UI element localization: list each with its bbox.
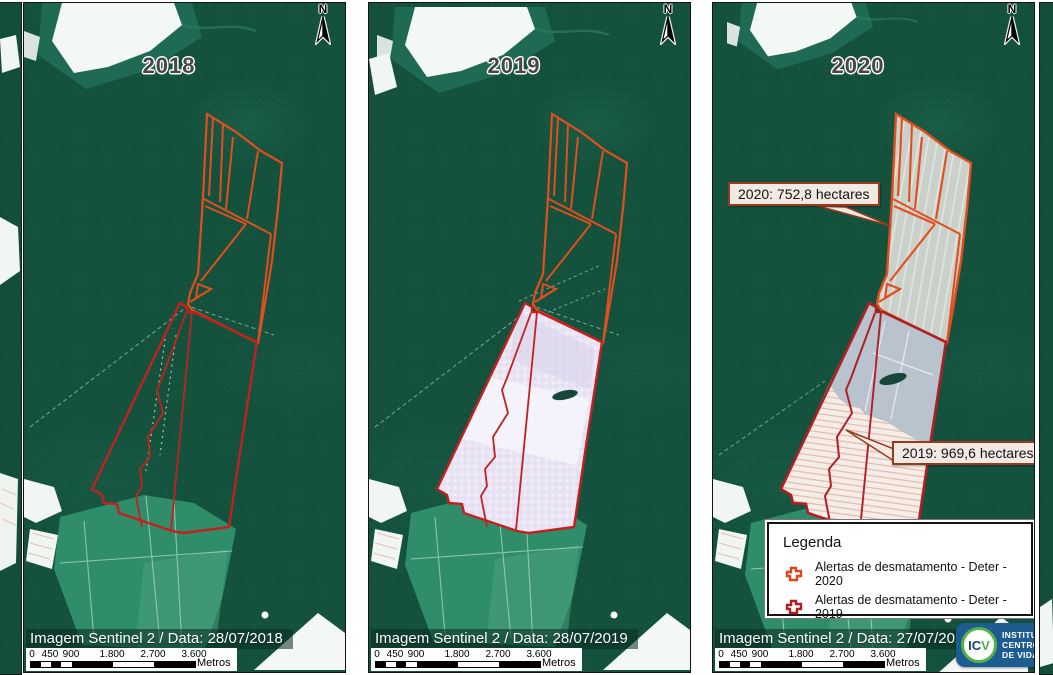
legend-item-label: Alertas de desmatamento - Deter - 2019 — [815, 593, 1019, 621]
legend-item-2019: Alertas de desmatamento - Deter - 2019 — [783, 593, 1019, 621]
icv-acronym: IC — [968, 638, 981, 653]
north-arrow: N — [657, 4, 679, 50]
north-label: N — [1001, 4, 1023, 15]
scale-tick: 450 — [387, 649, 404, 660]
north-label: N — [657, 4, 679, 15]
scale-tick: 900 — [63, 649, 80, 660]
cropped-map-strip-left — [0, 2, 22, 675]
scale-bar-segments — [719, 661, 885, 668]
north-arrow: N — [312, 4, 334, 50]
icv-logo: ICV INSTITUTO CENTRO DE VIDA — [956, 623, 1035, 667]
north-arrow-icon — [1004, 15, 1020, 45]
year-label: 2018 — [143, 53, 196, 79]
scale-unit: Metros — [197, 657, 231, 669]
scale-bar: 0 450 900 1.800 2.700 3.600 Metros — [715, 648, 926, 671]
map-panel-2019: 2019 N Imagem Sentinel 2 / Data: 28/07/2… — [368, 2, 691, 673]
callout-2019-hectares: 2019: 969,6 hectares — [892, 441, 1035, 465]
legend: Legenda Alertas de desmatamento - Deter … — [767, 522, 1033, 616]
strip-imagery — [1040, 3, 1053, 672]
icv-logo-circle: ICV — [961, 627, 997, 663]
alert-polygon-icon-2020 — [783, 565, 805, 583]
scale-tick: 900 — [752, 649, 769, 660]
scale-tick: 1.800 — [99, 649, 124, 660]
scale-unit: Metros — [886, 657, 920, 669]
scale-tick: 2.700 — [829, 649, 854, 660]
satellite-image-2018 — [24, 3, 345, 672]
scale-tick: 0 — [718, 649, 724, 660]
scale-tick: 900 — [408, 649, 425, 660]
cropped-map-strip-right — [1039, 2, 1053, 675]
legend-item-label: Alertas de desmatamento - Deter - 2020 — [815, 560, 1019, 588]
strip-imagery — [0, 3, 21, 672]
scale-tick: 2.700 — [485, 649, 510, 660]
north-arrow-icon — [315, 15, 331, 45]
north-label: N — [312, 4, 334, 15]
source-caption: Imagem Sentinel 2 / Data: 28/07/2019 — [371, 629, 638, 649]
scale-tick: 1.800 — [788, 649, 813, 660]
scale-bar: 0 450 900 1.800 2.700 3.600 Metros — [371, 648, 582, 671]
scale-unit: Metros — [542, 657, 576, 669]
legend-item-2020: Alertas de desmatamento - Deter - 2020 — [783, 560, 1019, 588]
scale-tick: 1.800 — [444, 649, 469, 660]
source-caption: Imagem Sentinel 2 / Data: 27/07/2020 — [715, 629, 982, 649]
map-composite: 2018 N Imagem Sentinel 2 / Data: 28/07/2… — [0, 0, 1053, 675]
scale-tick: 0 — [374, 649, 380, 660]
scale-tick: 450 — [731, 649, 748, 660]
scale-bar-segments — [30, 661, 196, 668]
satellite-image-2019 — [369, 3, 690, 672]
scale-tick: 2.700 — [140, 649, 165, 660]
alert-polygon-icon-2019 — [783, 598, 805, 616]
year-label: 2019 — [488, 53, 541, 79]
north-arrow: N — [1001, 4, 1023, 50]
map-panel-2020: 2020 N 2020: 752,8 hectares 2019: 969,6 … — [712, 2, 1035, 673]
source-caption: Imagem Sentinel 2 / Data: 28/07/2018 — [26, 629, 293, 649]
legend-title: Legenda — [783, 534, 1019, 551]
north-arrow-icon — [660, 15, 676, 45]
callout-2020-hectares: 2020: 752,8 hectares — [728, 182, 880, 206]
year-label: 2020 — [832, 53, 885, 79]
scale-tick: 450 — [42, 649, 59, 660]
scale-tick: 0 — [29, 649, 35, 660]
map-panel-2018: 2018 N Imagem Sentinel 2 / Data: 28/07/2… — [23, 2, 346, 673]
scale-bar: 0 450 900 1.800 2.700 3.600 Metros — [26, 648, 237, 671]
scale-bar-segments — [375, 661, 541, 668]
icv-logo-text: INSTITUTO CENTRO DE VIDA — [1002, 630, 1035, 661]
